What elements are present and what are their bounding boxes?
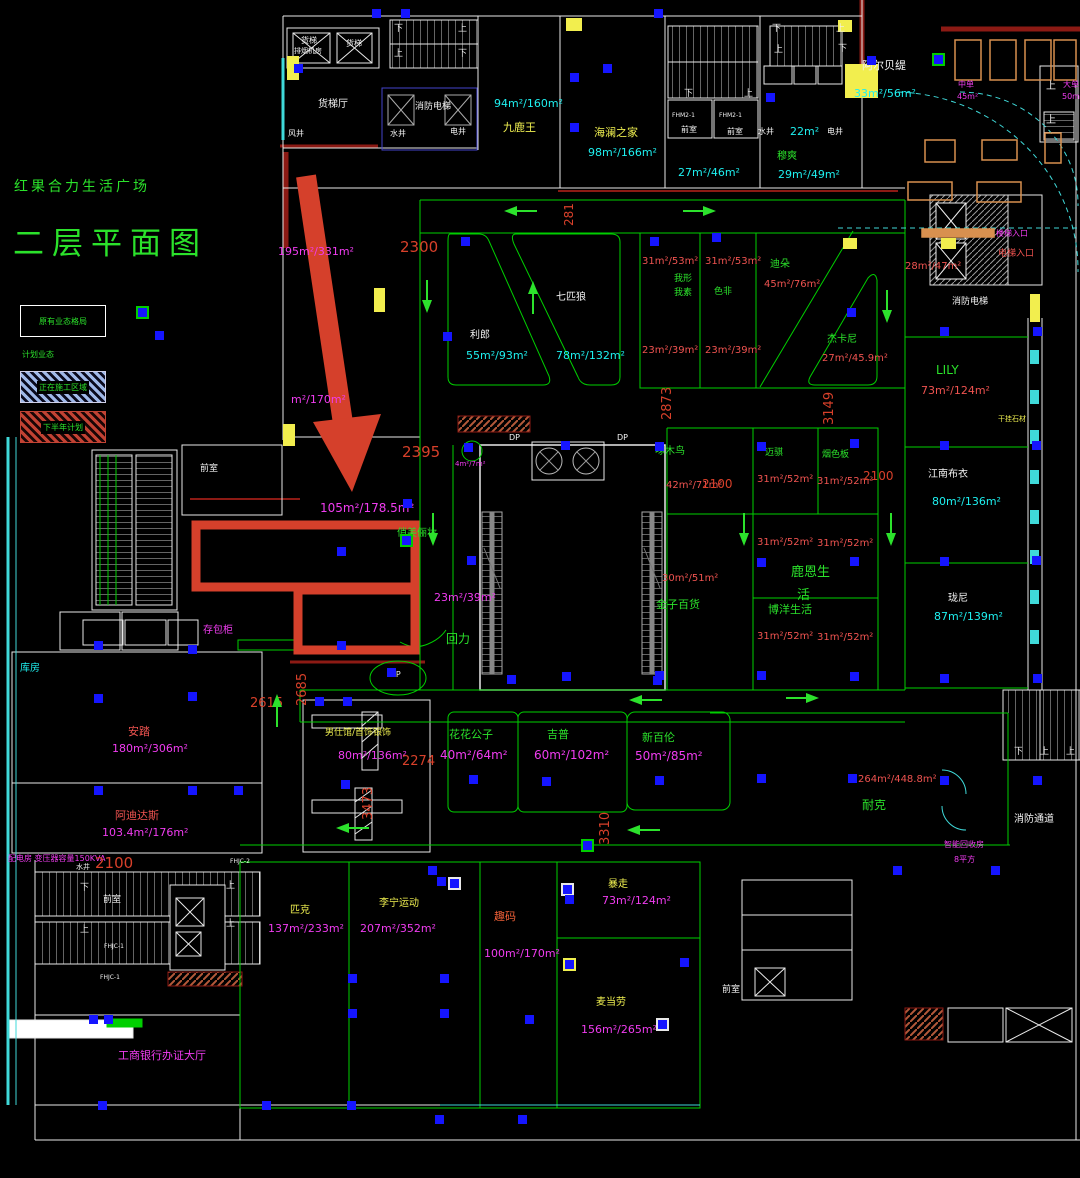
ceiling-fixture-square bbox=[348, 1009, 357, 1018]
room-label: 前室 bbox=[681, 126, 697, 134]
dimension-or-area-label: 3473 bbox=[362, 787, 375, 820]
room-label: 库房 bbox=[20, 664, 40, 674]
room-label: 匹克 bbox=[290, 906, 310, 916]
room-label: 色非 bbox=[714, 288, 732, 297]
dimension-or-area-label: 98m²/166m² bbox=[588, 147, 657, 158]
room-label: 博洋生活 bbox=[768, 604, 812, 615]
ceiling-fixture-square bbox=[448, 877, 461, 890]
ceiling-fixture-square bbox=[98, 1101, 107, 1110]
dimension-or-area-label: 30m²/51m² bbox=[662, 574, 718, 584]
ceiling-fixture-square bbox=[940, 776, 949, 785]
curtain-wall-ticks bbox=[1030, 350, 1039, 644]
room-label: DP bbox=[509, 434, 520, 442]
room-label: 楼梯入口 bbox=[996, 230, 1028, 238]
ceiling-fixture-square bbox=[850, 439, 859, 448]
room-label: 下 bbox=[772, 25, 781, 34]
ceiling-fixture-square bbox=[467, 556, 476, 565]
dimension-or-area-label: 137m²/233m² bbox=[268, 923, 344, 934]
room-label: FHM2-1 bbox=[719, 113, 742, 119]
room-label: 安踏 bbox=[128, 726, 150, 737]
room-label: 利郎 bbox=[470, 331, 490, 341]
ceiling-fixture-square bbox=[1032, 556, 1041, 565]
room-label: 暴走 bbox=[608, 880, 628, 890]
dimension-or-area-label: 60m²/102m² bbox=[534, 749, 609, 761]
legend-planned: 计划业态 bbox=[20, 345, 104, 363]
room-label: 穆爽 bbox=[777, 152, 797, 162]
dimension-or-area-label: 2685 bbox=[296, 673, 309, 706]
ceiling-fixture-square bbox=[940, 441, 949, 450]
ceiling-fixture-square bbox=[655, 442, 664, 451]
room-label: 杰卡尼 bbox=[827, 335, 857, 345]
ceiling-fixture-square bbox=[654, 9, 663, 18]
legend-second-half: 下半年计划 bbox=[20, 411, 106, 443]
ceiling-fixture-square bbox=[650, 237, 659, 246]
dimension-or-area-label: 29m²/49m² bbox=[778, 169, 840, 180]
ceiling-fixture-square bbox=[653, 676, 662, 685]
room-label: 消防通道 bbox=[1014, 815, 1054, 825]
room-label: 江南布衣 bbox=[928, 470, 968, 480]
room-label: 回力 bbox=[446, 633, 470, 645]
room-label: 电井 bbox=[827, 128, 843, 136]
floor-plan: 红果合力生活广场 二层平面图 原有业态格局 计划业态 正在施工区域 下半年计划 … bbox=[0, 0, 1080, 1178]
room-label: 前室 bbox=[727, 128, 743, 136]
room-label: 上 bbox=[1046, 116, 1056, 126]
ceiling-fixture-square bbox=[401, 9, 410, 18]
dimension-or-area-label: 50m²/85m² bbox=[635, 750, 703, 762]
corridor-direction-arrow bbox=[786, 692, 820, 704]
room-label: FHJC-1 bbox=[104, 944, 124, 950]
ceiling-fixture-square bbox=[387, 668, 396, 677]
dimension-or-area-label: 80m²/136m² bbox=[338, 750, 407, 761]
room-label: m²/170m² bbox=[291, 394, 346, 405]
floor-title: 二层平面图 bbox=[13, 218, 208, 263]
room-label: 迪朵 bbox=[770, 260, 790, 270]
ceiling-fixture-square bbox=[1032, 441, 1041, 450]
ceiling-fixture-square bbox=[570, 73, 579, 82]
dimension-or-area-label: 2100 bbox=[702, 478, 733, 490]
dimension-or-area-label: 23m²/39m² bbox=[642, 346, 698, 356]
ceiling-fixture-square bbox=[940, 674, 949, 683]
dimension-or-area-label: 73m²/124m² bbox=[602, 895, 671, 906]
room-label: 迈骐 bbox=[765, 449, 783, 458]
ceiling-fixture-square bbox=[991, 866, 1000, 875]
dimension-or-area-label: 31m²/52m² bbox=[817, 633, 873, 643]
corridor-direction-arrow bbox=[626, 824, 660, 836]
room-label: 上 bbox=[1046, 82, 1056, 92]
corridor-direction-arrow bbox=[881, 290, 893, 324]
ceiling-fixture-square bbox=[850, 557, 859, 566]
ceiling-fixture-square bbox=[337, 547, 346, 556]
ceiling-fixture-square bbox=[428, 866, 437, 875]
corridor-direction-arrow bbox=[628, 694, 662, 706]
dimension-or-area-label: 94m²/160m² bbox=[494, 98, 563, 109]
corridor-direction-arrow bbox=[738, 513, 750, 547]
atrium-escalators bbox=[482, 448, 662, 674]
ceiling-fixture-square bbox=[188, 645, 197, 654]
room-label: 货梯 bbox=[346, 40, 362, 48]
dimension-or-area-label: 105m²/178.5m² bbox=[320, 502, 414, 514]
dimension-or-area-label: 55m²/93m² bbox=[466, 350, 528, 361]
ceiling-fixture-square bbox=[850, 672, 859, 681]
ceiling-fixture-square bbox=[343, 697, 352, 706]
ceiling-fixture-square bbox=[680, 958, 689, 967]
room-label: 中单 bbox=[958, 81, 974, 89]
room-label: 花花公子 bbox=[449, 729, 493, 740]
ceiling-fixture-square bbox=[1033, 674, 1042, 683]
dimension-or-area-label: 156m²/265m² bbox=[581, 1024, 657, 1035]
dimension-or-area-label: 31m²/53m² bbox=[705, 257, 761, 267]
dimension-or-area-label: 2274 bbox=[402, 755, 435, 768]
dimension-or-area-label: 23m²/39m² bbox=[705, 346, 761, 356]
ceiling-fixture-square bbox=[104, 1015, 113, 1024]
elevator-core bbox=[382, 88, 477, 150]
room-label: 消防电梯 bbox=[952, 298, 988, 307]
room-label: 李宁运动 bbox=[379, 899, 419, 909]
ceiling-fixture-square bbox=[848, 774, 857, 783]
room-label: 存包柜 bbox=[203, 626, 233, 636]
ceiling-fixture-square bbox=[440, 974, 449, 983]
room-label: 我素 bbox=[674, 289, 692, 298]
room-label: 上 bbox=[80, 926, 89, 935]
room-label: 金子百货 bbox=[656, 599, 700, 610]
dimension-or-area-label: 2300 bbox=[400, 240, 438, 255]
ceiling-fixture-square bbox=[341, 780, 350, 789]
dimension-or-area-label: 2395 bbox=[402, 445, 440, 460]
ceiling-fixture-square bbox=[757, 774, 766, 783]
dimension-or-area-label: 195m²/331m² bbox=[278, 246, 354, 257]
ceiling-fixture-square bbox=[440, 1009, 449, 1018]
dimension-or-area-label: 281 bbox=[563, 203, 575, 226]
legend: 原有业态格局 计划业态 正在施工区域 下半年计划 bbox=[20, 305, 110, 451]
room-label: 烟色板 bbox=[822, 451, 849, 460]
room-label: 工商银行办证大厅 bbox=[118, 1050, 206, 1061]
room-label: 麦当劳 bbox=[596, 998, 626, 1008]
ceiling-fixture-square bbox=[757, 671, 766, 680]
dimension-or-area-label: 264m²/448.8m² bbox=[858, 775, 937, 785]
corridor-direction-arrow bbox=[335, 822, 369, 834]
ceiling-fixture-square bbox=[372, 9, 381, 18]
dimension-or-area-label: 100m²/170m² bbox=[484, 948, 560, 959]
ceiling-fixture-square bbox=[188, 692, 197, 701]
room-label: 上 bbox=[1066, 748, 1075, 757]
dimension-or-area-label: 28m²/47m² bbox=[905, 262, 961, 272]
ceiling-fixture-square bbox=[188, 786, 197, 795]
floorplan-drawing bbox=[0, 0, 1080, 1178]
room-label: 趣码 bbox=[494, 911, 516, 922]
room-label: 活 bbox=[797, 589, 810, 602]
room-label: 我形 bbox=[674, 275, 692, 284]
ceiling-fixture-square bbox=[94, 641, 103, 650]
red-arrow-shaft bbox=[306, 176, 344, 430]
corridor-direction-arrow bbox=[271, 693, 283, 727]
ceiling-fixture-square bbox=[234, 786, 243, 795]
dimension-or-area-label: 8平方 bbox=[954, 856, 975, 864]
dimension-or-area-label: 33m²/56m² bbox=[854, 88, 916, 99]
room-label: 前室 bbox=[200, 465, 218, 474]
room-label: 干挂石材 bbox=[998, 416, 1026, 423]
room-label: 下 bbox=[458, 50, 467, 59]
white-walls bbox=[8, 0, 1080, 1140]
room-label: 上 bbox=[458, 25, 467, 34]
room-label: 上 bbox=[226, 920, 235, 929]
ceiling-fixture-square bbox=[563, 958, 576, 971]
ceiling-fixture-square bbox=[155, 331, 164, 340]
room-label: 货梯 bbox=[301, 37, 317, 45]
room-label: 水井 bbox=[76, 864, 90, 871]
dimension-or-area-label: 40m²/64m² bbox=[440, 749, 508, 761]
dimension-or-area-label: 27m²/46m² bbox=[678, 167, 740, 178]
red-arrow-head bbox=[313, 414, 381, 492]
corridor-direction-arrow bbox=[527, 280, 539, 314]
ceiling-fixture-square bbox=[655, 776, 664, 785]
room-label: 前室 bbox=[722, 986, 740, 995]
dimension-or-area-label: 27m²/45.9m² bbox=[822, 354, 888, 364]
ceiling-fixture-square bbox=[94, 786, 103, 795]
dimension-or-area-label: 31m²/53m² bbox=[642, 257, 698, 267]
ceiling-fixture-square bbox=[525, 1015, 534, 1024]
ceiling-fixture-square bbox=[89, 1015, 98, 1024]
ceiling-fixture-square bbox=[757, 442, 766, 451]
dimension-or-area-label: 2873 bbox=[661, 387, 674, 420]
room-label: 新百伦 bbox=[642, 732, 675, 743]
corridor-direction-arrow bbox=[885, 513, 897, 547]
corridor-direction-arrow bbox=[503, 205, 537, 217]
room-label: 下 bbox=[838, 45, 847, 54]
room-label: DP bbox=[617, 434, 628, 442]
room-label: FHJC-1 bbox=[100, 975, 120, 981]
ceiling-fixture-square bbox=[656, 1018, 669, 1031]
room-label: FHJC-2 bbox=[230, 859, 250, 865]
dimension-or-area-label: 23m²/39m² bbox=[434, 592, 496, 603]
ceiling-fixture-square bbox=[1033, 776, 1042, 785]
ceiling-fixture-square bbox=[940, 557, 949, 566]
dimension-or-area-label: 180m²/306m² bbox=[112, 743, 188, 754]
dimension-or-area-label: 31m²/52m² bbox=[757, 475, 813, 485]
dimension-or-area-label: 22m² bbox=[790, 126, 819, 137]
room-label: LILY bbox=[936, 364, 959, 376]
ceiling-fixture-square bbox=[518, 1115, 527, 1124]
dimension-or-area-label: 3149 bbox=[823, 392, 836, 425]
room-label: 大单 bbox=[1063, 81, 1079, 89]
room-label: 上 bbox=[1040, 748, 1049, 757]
legend-construction: 正在施工区域 bbox=[20, 371, 106, 403]
ceiling-fixture-square bbox=[542, 777, 551, 786]
room-label: 海澜之家 bbox=[594, 127, 638, 138]
ceiling-fixture-square bbox=[867, 56, 876, 65]
ceiling-fixture-square bbox=[337, 641, 346, 650]
room-label: 上 bbox=[774, 46, 783, 55]
dimension-or-area-label: 80m²/136m² bbox=[932, 496, 1001, 507]
ceiling-fixture-square bbox=[561, 441, 570, 450]
ceiling-fixture-square bbox=[562, 672, 571, 681]
ceiling-fixture-square bbox=[464, 443, 473, 452]
ceiling-fixture-square bbox=[403, 499, 412, 508]
ceiling-fixture-square bbox=[766, 93, 775, 102]
room-label: 九鹿王 bbox=[503, 122, 536, 133]
ceiling-fixture-square bbox=[581, 839, 594, 852]
ceiling-fixture-square bbox=[461, 237, 470, 246]
room-label: 前室 bbox=[103, 896, 121, 905]
room-label: 智能回收房 bbox=[944, 841, 984, 849]
dimension-or-area-label: 103.4m²/176m² bbox=[102, 827, 188, 838]
ceiling-fixture-square bbox=[940, 327, 949, 336]
room-label: 风井 bbox=[288, 130, 304, 138]
ceiling-fixture-square bbox=[712, 233, 721, 242]
ceiling-fixture-square bbox=[400, 534, 413, 547]
room-label: 电梯入口 bbox=[998, 250, 1034, 259]
room-label: FHM2-1 bbox=[672, 113, 695, 119]
room-label: 下 bbox=[684, 90, 693, 99]
ceiling-fixture-square bbox=[570, 123, 579, 132]
room-label: 货梯厅 bbox=[318, 100, 348, 110]
ceiling-fixture-square bbox=[469, 775, 478, 784]
dimension-or-area-label: 31m²/52m² bbox=[817, 539, 873, 549]
ceiling-fixture-square bbox=[94, 694, 103, 703]
ceiling-fixture-square bbox=[435, 1115, 444, 1124]
ceiling-fixture-square bbox=[603, 64, 612, 73]
ceiling-fixture-square bbox=[1033, 327, 1042, 336]
legend-existing: 原有业态格局 bbox=[20, 305, 106, 337]
room-label: 电井 bbox=[450, 128, 466, 136]
room-label: 水井 bbox=[390, 130, 406, 138]
room-label: 配电房 变压器容量150KVA bbox=[8, 855, 106, 863]
room-label: 鹿恩生 bbox=[791, 566, 830, 579]
room-label: 下 bbox=[394, 25, 403, 34]
dimension-or-area-label: 31m²/52m² bbox=[757, 632, 813, 642]
room-label: 排烟机房 bbox=[294, 48, 322, 55]
corridor-direction-arrow bbox=[421, 280, 433, 314]
plaza-name: 红果合力生活广场 bbox=[14, 176, 150, 196]
room-label: 下 bbox=[80, 884, 89, 893]
room-label: 上 bbox=[836, 25, 845, 34]
red-highlight-box-upper bbox=[196, 525, 415, 587]
corridor-direction-arrow bbox=[683, 205, 717, 217]
room-label: 男仕馆/首饰银饰 bbox=[325, 729, 391, 738]
room-label: 七匹狼 bbox=[556, 293, 586, 303]
dimension-or-area-label: 78m²/132m² bbox=[556, 350, 625, 361]
room-label: 上 bbox=[226, 882, 235, 891]
dimension-or-area-label: 31m²/52m² bbox=[757, 538, 813, 548]
dimension-or-area-label: 2100 bbox=[863, 470, 894, 482]
ceiling-fixture-square bbox=[437, 877, 446, 886]
ceiling-fixture-square bbox=[315, 697, 324, 706]
ceiling-fixture-square bbox=[565, 895, 574, 904]
room-label: 水井 bbox=[758, 128, 774, 136]
ceiling-fixture-square bbox=[507, 675, 516, 684]
dimension-or-area-label: 45m²/76m² bbox=[764, 280, 820, 290]
dimension-or-area-label: 45m² bbox=[957, 93, 978, 101]
room-label: 吉普 bbox=[547, 729, 569, 740]
dimension-or-area-label: 87m²/139m² bbox=[934, 611, 1003, 622]
room-label: 消防电梯 bbox=[415, 103, 451, 112]
ceiling-fixture-square bbox=[893, 866, 902, 875]
red-highlight-box-lower bbox=[298, 590, 415, 650]
ceiling-fixture-square bbox=[347, 1101, 356, 1110]
ceiling-fixture-square bbox=[262, 1101, 271, 1110]
ceiling-fixture-square bbox=[932, 53, 945, 66]
ceiling-fixture-square bbox=[294, 64, 303, 73]
dimension-or-area-label: 207m²/352m² bbox=[360, 923, 436, 934]
room-label: 上 bbox=[744, 90, 753, 99]
corridor-direction-arrow bbox=[427, 513, 439, 547]
dimension-or-area-label: 2100 bbox=[95, 856, 133, 871]
dimension-or-area-label: 50m² bbox=[1062, 93, 1080, 101]
ceiling-fixture-square bbox=[348, 974, 357, 983]
room-label: 珑尼 bbox=[948, 594, 968, 604]
ceiling-fixture-square bbox=[443, 332, 452, 341]
dimension-or-area-label: 3310 bbox=[599, 812, 612, 845]
room-label: 阿迪达斯 bbox=[115, 810, 159, 821]
ceiling-fixture-square bbox=[136, 306, 149, 319]
room-label: 耐克 bbox=[862, 799, 886, 811]
room-label: 上 bbox=[394, 50, 403, 59]
room-label: 下 bbox=[1014, 748, 1023, 757]
dimension-or-area-label: 73m²/124m² bbox=[921, 385, 990, 396]
ceiling-fixture-square bbox=[847, 308, 856, 317]
ceiling-fixture-square bbox=[757, 558, 766, 567]
dimension-or-area-label: 4m²/7m² bbox=[455, 461, 486, 468]
